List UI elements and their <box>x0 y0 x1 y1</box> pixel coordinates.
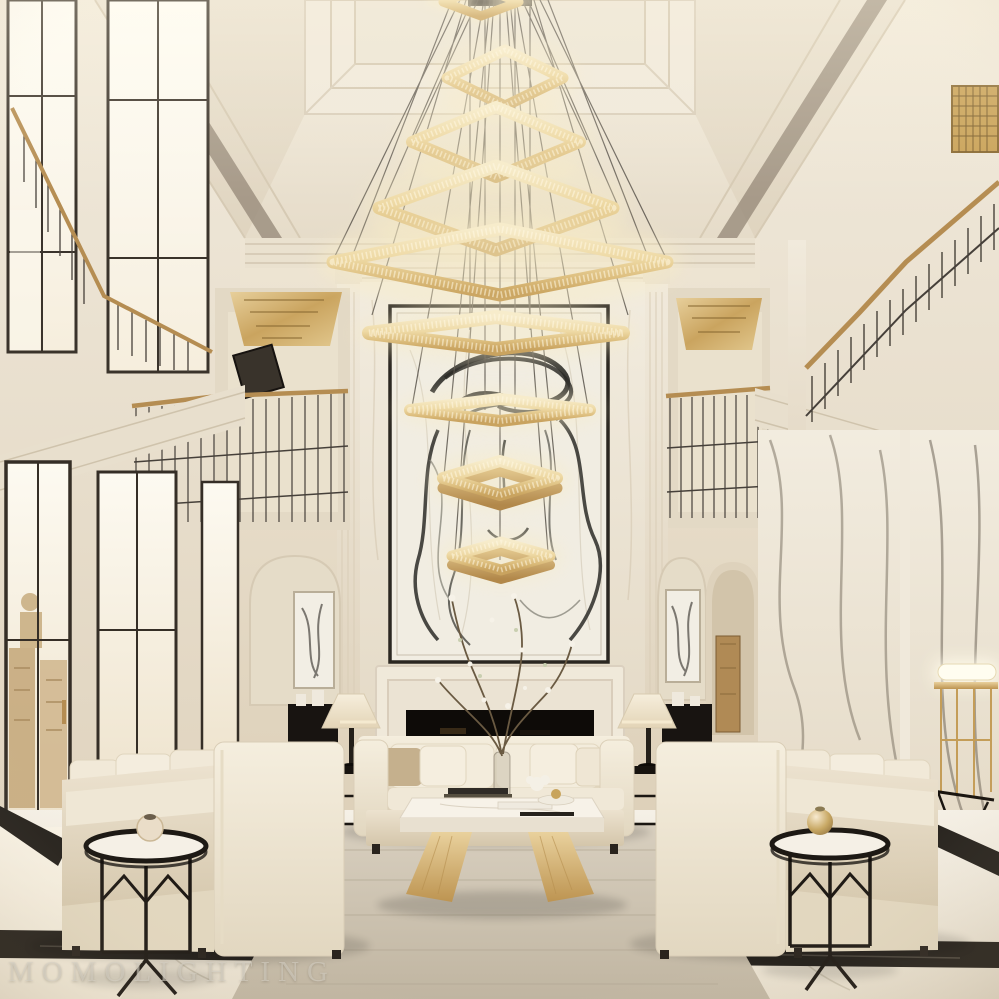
scene-rendering <box>0 0 999 999</box>
living-room-photo: MOMOLIGHTING <box>0 0 999 999</box>
vignette <box>0 0 999 999</box>
watermark: MOMOLIGHTING <box>8 956 336 989</box>
